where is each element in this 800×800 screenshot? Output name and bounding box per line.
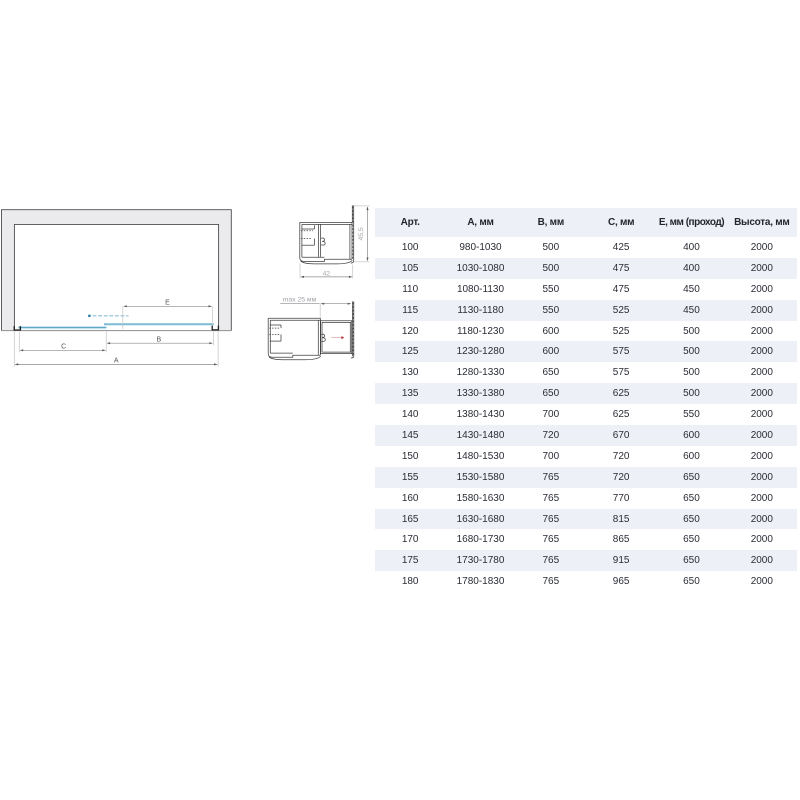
svg-text:42: 42	[323, 271, 331, 278]
svg-text:A: A	[114, 358, 119, 365]
svg-text:C: C	[61, 344, 66, 351]
svg-text:B: B	[156, 336, 161, 343]
svg-text:max 25 мм: max 25 мм	[283, 296, 317, 303]
svg-text:45,5: 45,5	[358, 227, 365, 240]
svg-text:E: E	[165, 300, 170, 307]
